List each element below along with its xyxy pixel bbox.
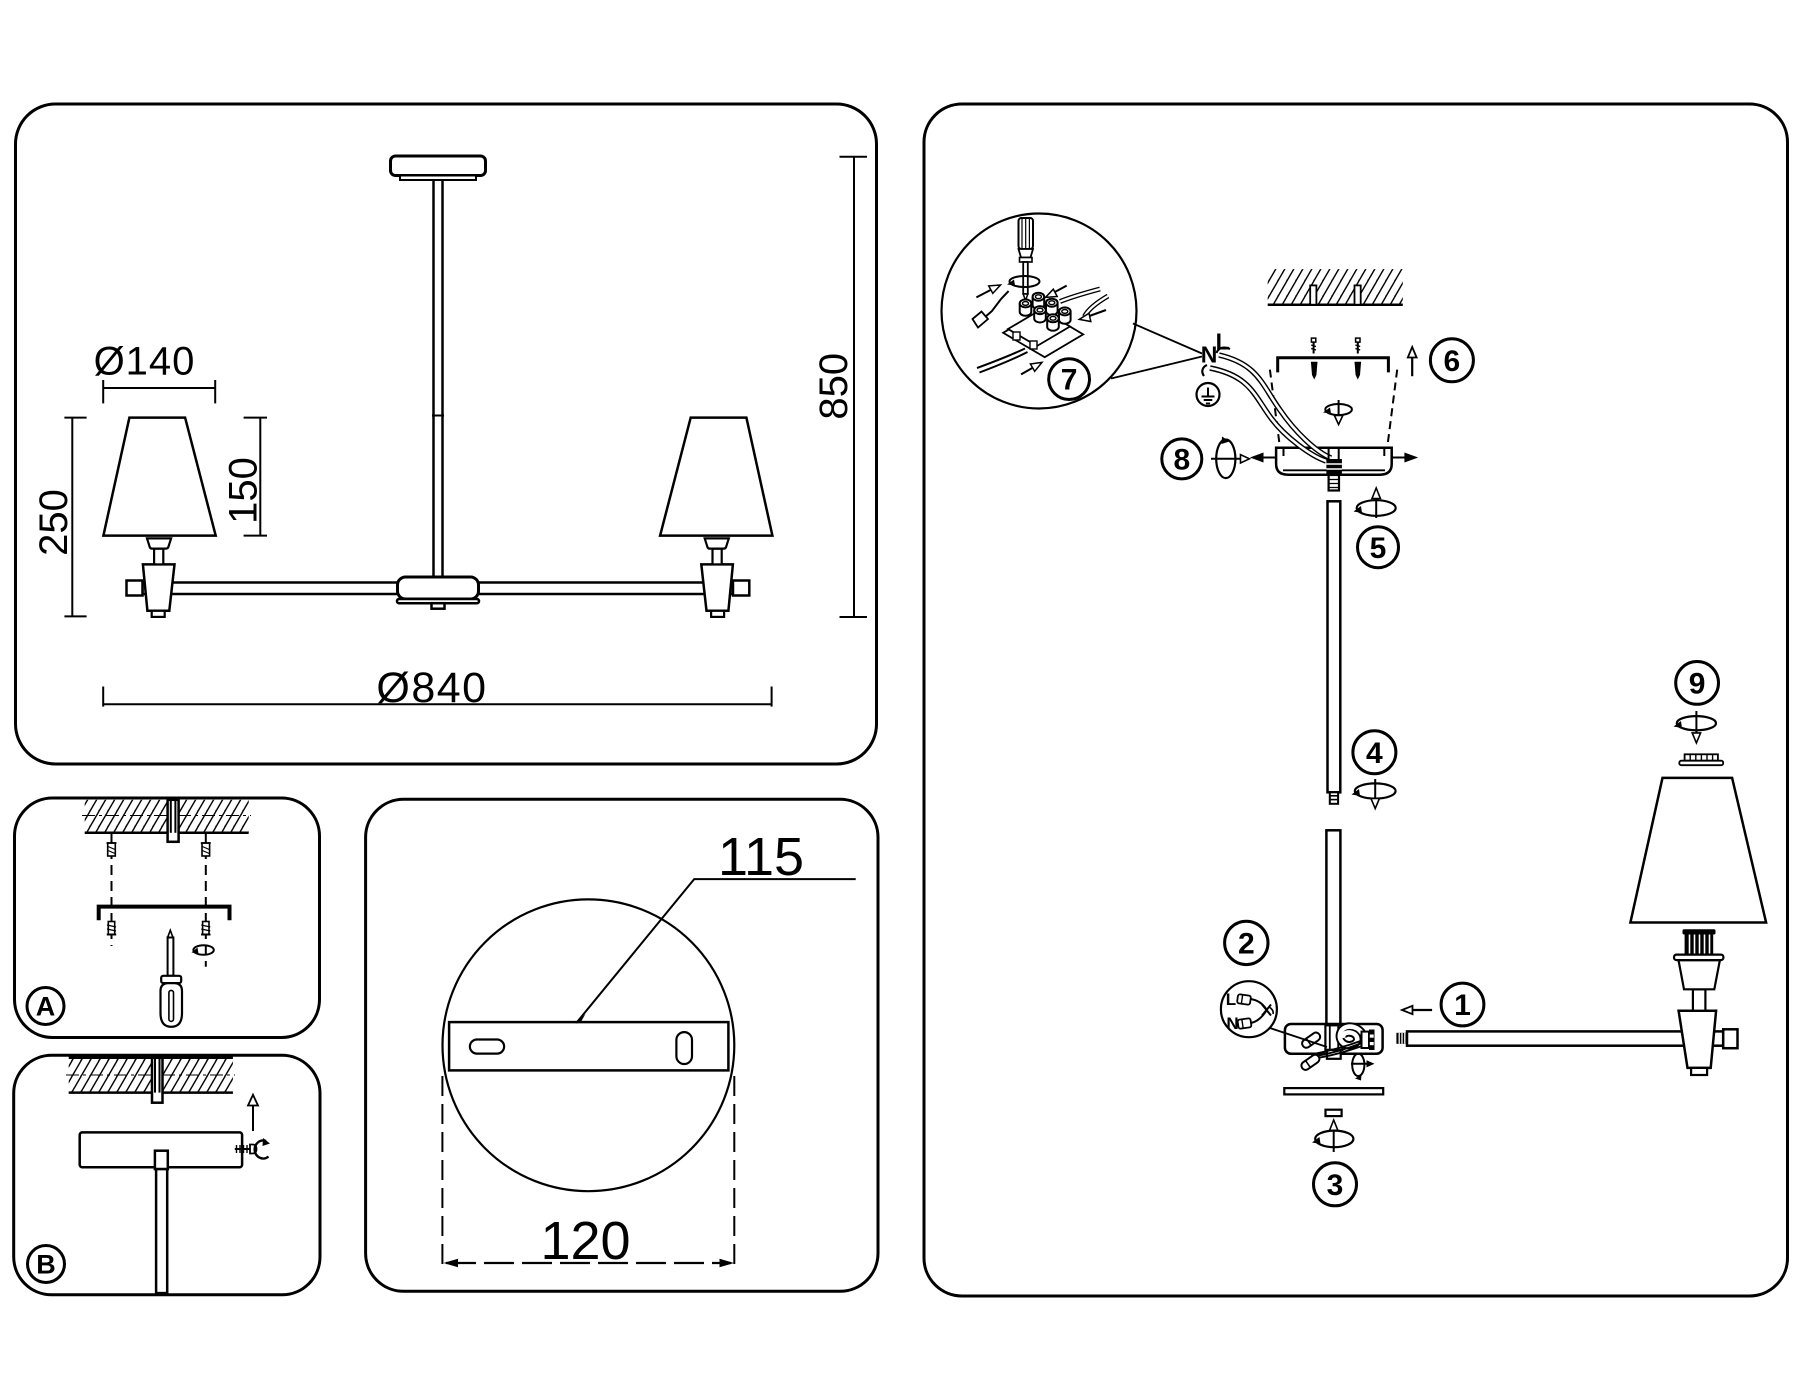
svg-text:250: 250	[32, 489, 76, 556]
svg-text:B: B	[36, 1250, 56, 1280]
svg-text:850: 850	[812, 353, 856, 420]
svg-text:6: 6	[1444, 345, 1461, 378]
svg-text:3: 3	[1327, 1169, 1344, 1202]
svg-text:L: L	[1226, 990, 1236, 1009]
svg-text:5: 5	[1370, 532, 1387, 565]
svg-text:2: 2	[1238, 928, 1255, 961]
svg-text:120: 120	[540, 1211, 630, 1271]
svg-text:115: 115	[718, 827, 804, 887]
svg-text:1: 1	[1454, 989, 1471, 1022]
svg-text:N: N	[1226, 1014, 1238, 1033]
svg-text:A: A	[36, 992, 56, 1022]
svg-text:N: N	[1201, 341, 1218, 367]
svg-text:7: 7	[1061, 364, 1078, 397]
svg-text:150: 150	[222, 457, 266, 524]
svg-text:4: 4	[1366, 737, 1383, 770]
svg-text:8: 8	[1173, 443, 1190, 476]
svg-text:9: 9	[1689, 668, 1706, 701]
svg-text:Ø140: Ø140	[94, 340, 196, 384]
